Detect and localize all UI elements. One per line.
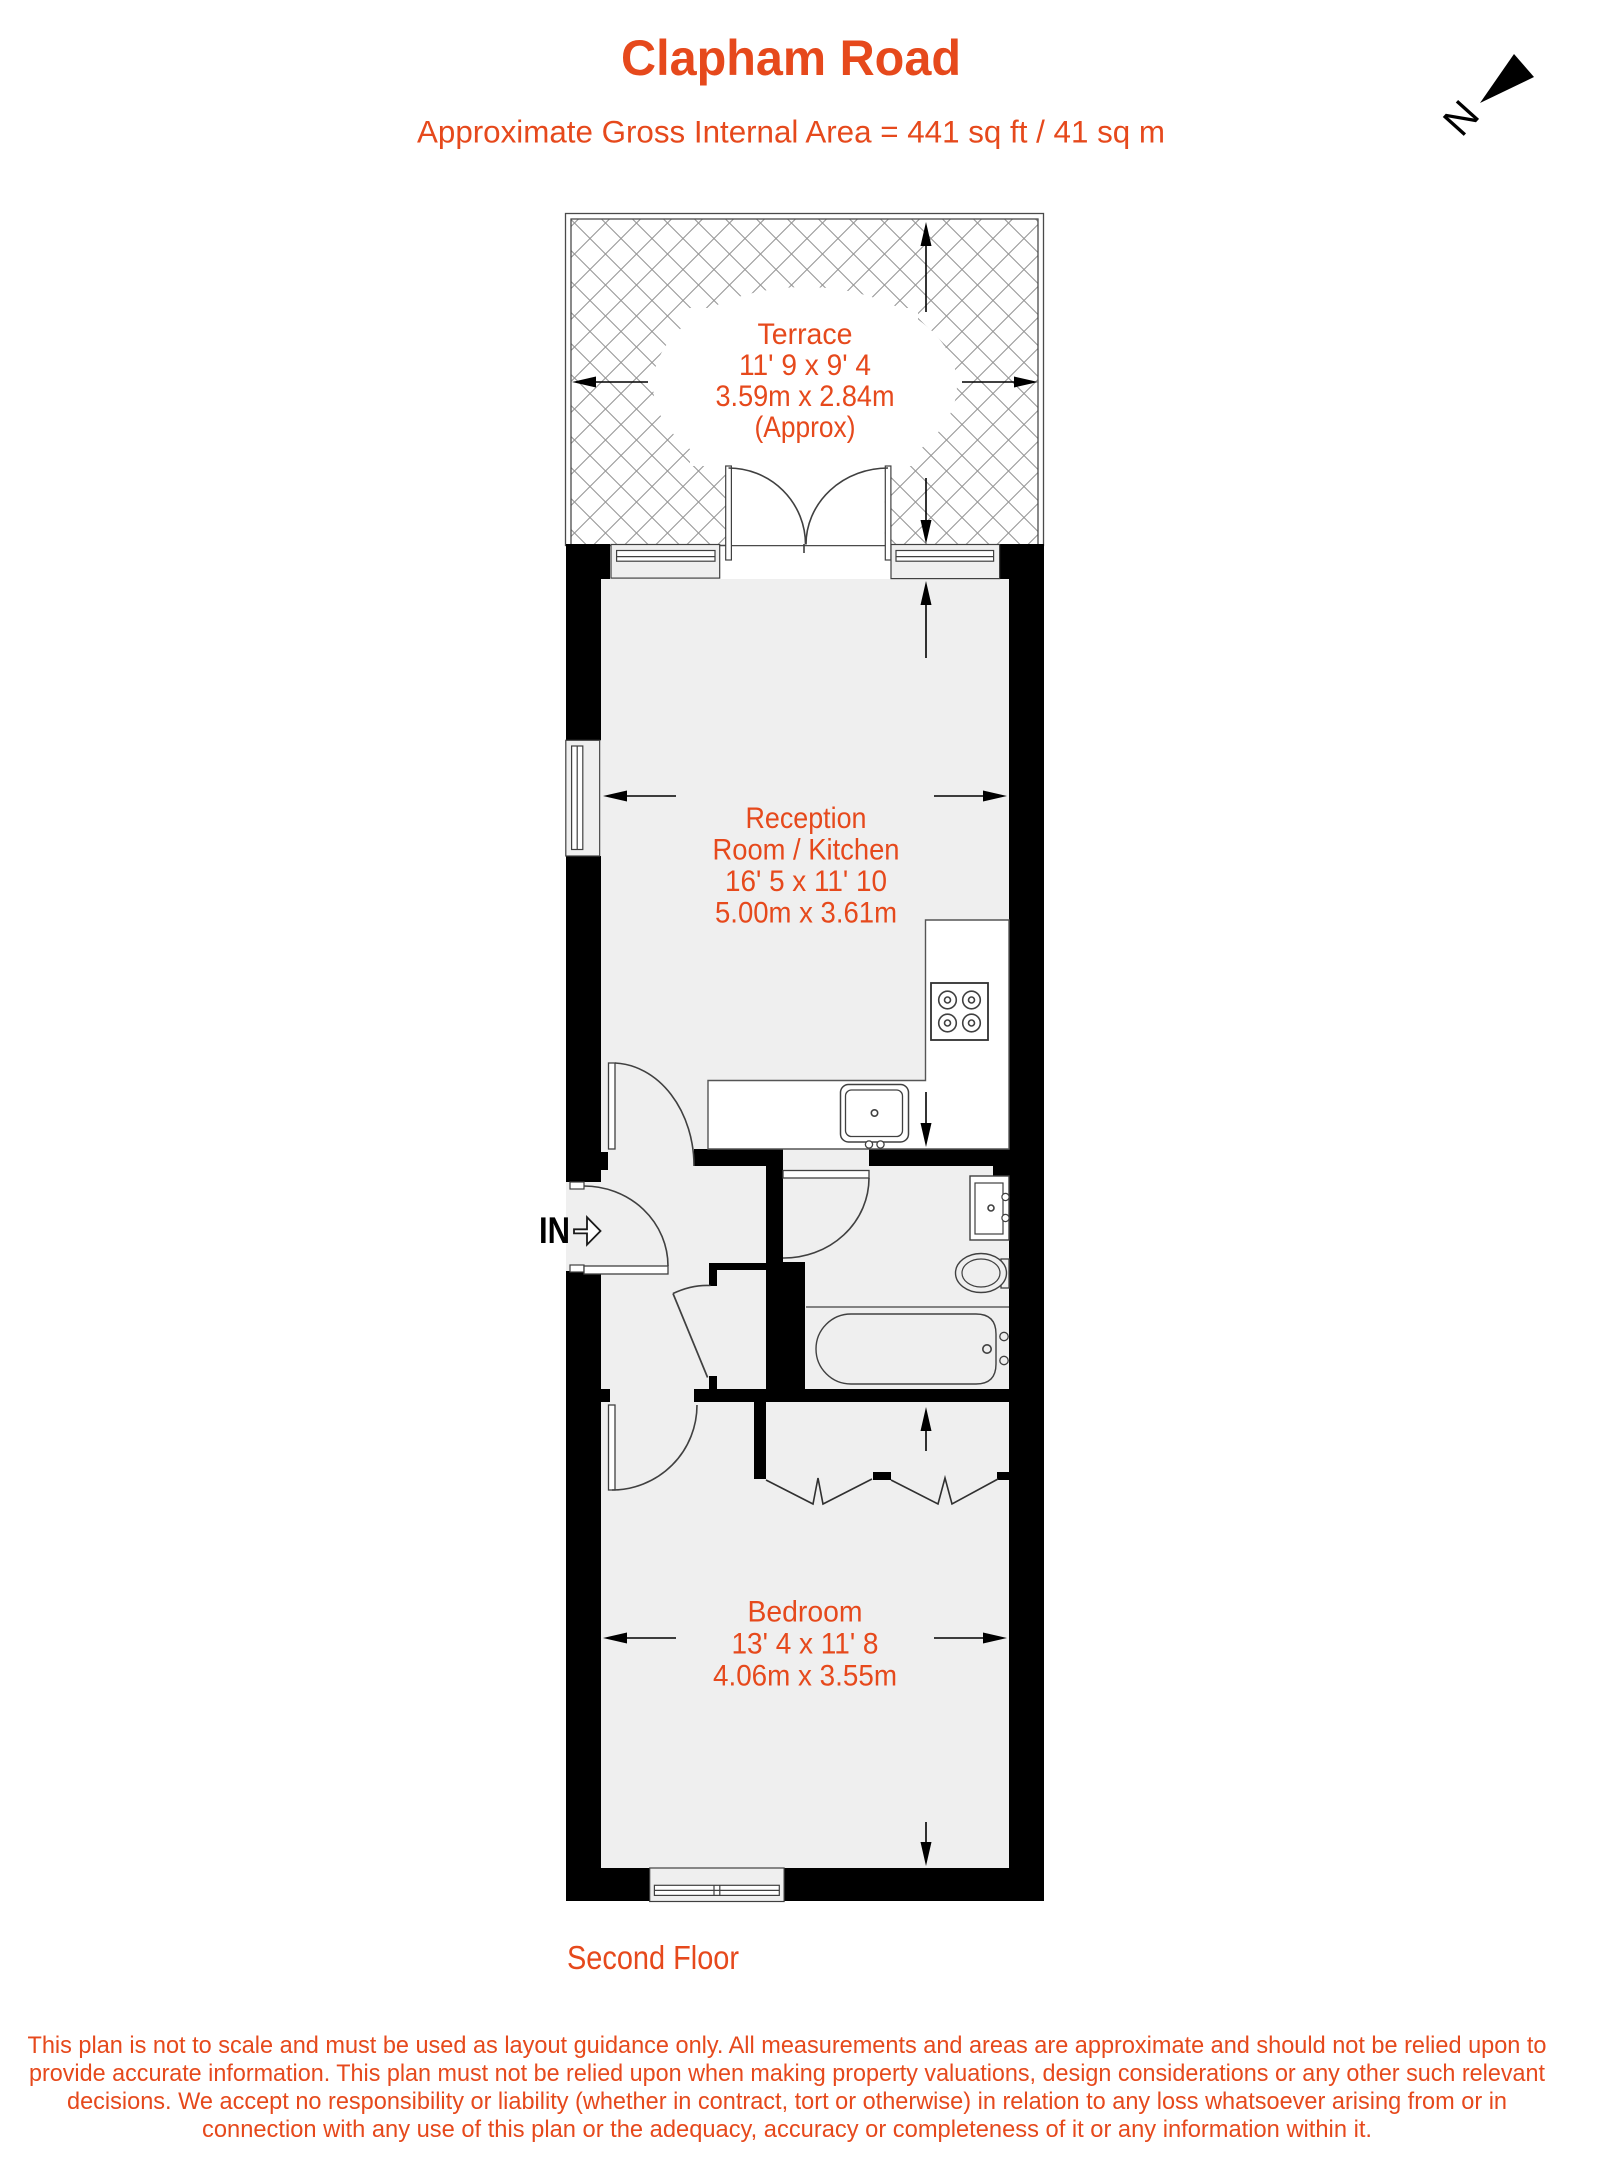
svg-text:Bedroom: Bedroom (748, 1596, 863, 1629)
svg-text:Reception: Reception (746, 802, 867, 835)
svg-text:16' 5 x 11' 10: 16' 5 x 11' 10 (725, 865, 887, 898)
svg-text:4.06m x 3.55m: 4.06m x 3.55m (713, 1660, 897, 1693)
svg-text:Clapham Road: Clapham Road (621, 30, 961, 86)
svg-text:decisions. We accept no respon: decisions. We accept no responsibility o… (67, 2088, 1507, 2115)
svg-text:Terrace: Terrace (758, 318, 853, 351)
svg-text:connection with any use of thi: connection with any use of this plan or … (202, 2116, 1372, 2143)
svg-text:Approximate Gross Internal Are: Approximate Gross Internal Area = 441 sq… (417, 114, 1165, 150)
svg-text:13' 4 x 11' 8: 13' 4 x 11' 8 (732, 1628, 879, 1661)
svg-text:5.00m x 3.61m: 5.00m x 3.61m (715, 897, 897, 930)
svg-text:provide accurate information.: provide accurate information. This plan … (29, 2060, 1545, 2087)
svg-text:This plan is not to scale and: This plan is not to scale and must be us… (28, 2032, 1547, 2059)
svg-text:(Approx): (Approx) (755, 411, 856, 444)
svg-text:Second Floor: Second Floor (567, 1939, 739, 1976)
svg-text:11' 9 x 9' 4: 11' 9 x 9' 4 (739, 349, 871, 382)
svg-text:Room / Kitchen: Room / Kitchen (713, 834, 900, 867)
svg-text:3.59m x 2.84m: 3.59m x 2.84m (716, 380, 895, 413)
svg-text:IN: IN (539, 1210, 570, 1251)
